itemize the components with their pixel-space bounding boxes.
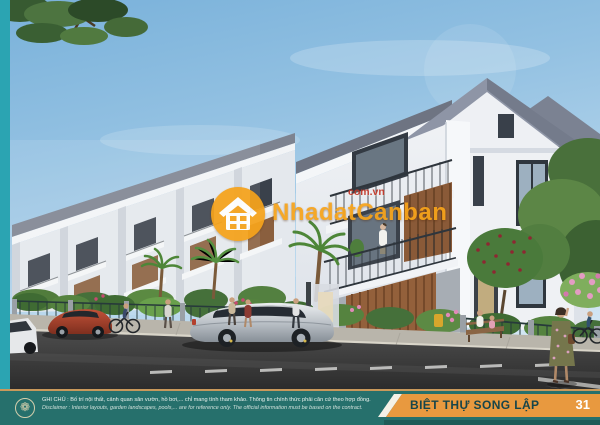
seal-icon: ❁ xyxy=(15,398,35,418)
brochure-page: com.vn NhadatCanban ❁ GHI CHÚ : Bố trí n… xyxy=(0,0,600,425)
band-shadow xyxy=(384,420,600,425)
disclaimer-notes: GHI CHÚ : Bố trí nội thất, cảnh quan sân… xyxy=(42,396,371,412)
page-number: 31 xyxy=(576,397,590,412)
footer-bar: ❁ GHI CHÚ : Bố trí nội thất, cảnh quan s… xyxy=(0,389,600,425)
note-vietnamese: GHI CHÚ : Bố trí nội thất, cảnh quan sân… xyxy=(42,396,371,404)
property-type-band: BIỆT THỰ SONG LẬP 31 xyxy=(386,394,600,417)
distant-villas xyxy=(10,133,295,315)
note-english: Disclaimer : Interior layouts, garden la… xyxy=(42,404,371,412)
accent-stripe xyxy=(0,0,10,391)
villa-rendering xyxy=(0,0,600,425)
corner-tree xyxy=(0,0,148,45)
property-type-label: BIỆT THỰ SONG LẬP xyxy=(410,398,539,412)
